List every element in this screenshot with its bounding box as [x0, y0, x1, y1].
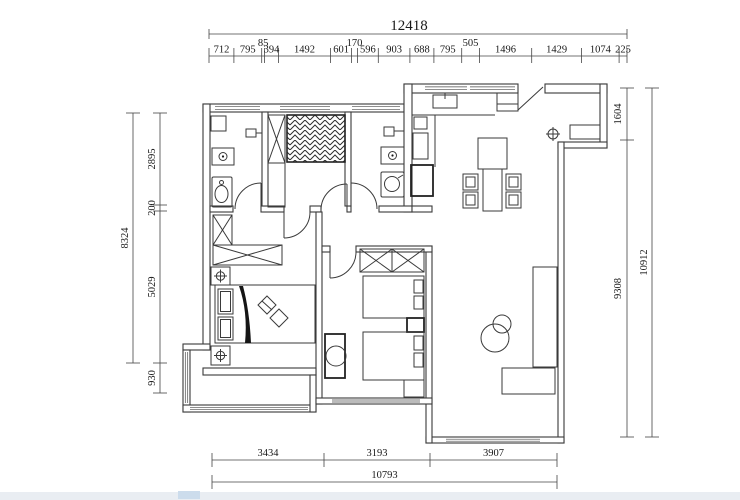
fridge-icon — [411, 165, 433, 196]
floor-plan: 1241871279585394149260117059690368879550… — [0, 0, 740, 500]
wall-heater-icon — [384, 127, 394, 136]
washing-machine-door — [326, 346, 346, 366]
counter-appliance — [414, 117, 427, 129]
wall-balcony-right — [310, 375, 316, 412]
dim-label: 1496 — [495, 45, 516, 56]
wall-bedroom2-north-a — [322, 246, 330, 252]
wall-left — [203, 104, 210, 350]
bed-runner — [239, 286, 251, 343]
wall-hall-north-e — [379, 206, 412, 212]
bathroom1 — [211, 116, 262, 207]
wall-bedroom2-south — [316, 398, 432, 404]
dim-label: 8324 — [120, 227, 131, 249]
stool — [404, 380, 424, 397]
twin-bed — [363, 276, 424, 318]
pillow — [414, 296, 423, 309]
pillow-inner — [221, 292, 231, 312]
dim-label: 12418 — [390, 18, 428, 34]
dining — [463, 138, 521, 211]
wall-entry-right — [600, 84, 607, 148]
wall-master-east — [316, 212, 322, 404]
master-bedroom — [211, 215, 315, 365]
chair — [463, 192, 478, 208]
chair — [463, 174, 478, 190]
study-door-arc — [321, 184, 347, 210]
screenshot-edge-artifact — [178, 491, 200, 499]
entry — [546, 125, 600, 141]
dim-label: 3193 — [367, 448, 388, 459]
chair-seat — [466, 177, 475, 187]
entry-door-leaf — [518, 87, 543, 110]
throw-pillow — [270, 309, 288, 327]
wall-bath1-east — [262, 112, 268, 206]
nightstand — [407, 318, 424, 332]
dining-table-leaf — [483, 169, 502, 211]
sink-drain-dot — [222, 155, 224, 157]
bedroom2-door-arc — [330, 252, 356, 278]
side-table-icon — [481, 324, 509, 352]
living-room — [481, 267, 557, 394]
tv-cabinet-tall — [533, 267, 557, 367]
pillow — [414, 280, 423, 293]
dining-table — [478, 138, 507, 169]
floor-plan-page: 1241871279585394149260117059690368879550… — [0, 0, 740, 500]
dim-label: 795 — [440, 45, 456, 56]
toilet-flush — [398, 175, 403, 178]
chair — [506, 174, 521, 190]
dim-label: 596 — [360, 45, 376, 56]
sink-drain-dot — [391, 154, 393, 156]
dim-label: 930 — [147, 370, 158, 386]
twin-bed — [363, 332, 424, 380]
dim-label: 200 — [147, 200, 158, 216]
wall-top-kitchen-west — [404, 84, 518, 93]
master-door-arc — [284, 212, 310, 238]
study-room — [268, 115, 345, 207]
dim-label: 1074 — [590, 45, 612, 56]
walls — [183, 84, 607, 443]
dim-label: 505 — [463, 38, 479, 49]
windows — [185, 87, 540, 441]
stove-icon — [497, 93, 518, 111]
pillow — [414, 353, 423, 367]
toilet-flush — [220, 181, 224, 185]
wall-balcony-bottom — [183, 405, 316, 412]
dim-label: 2895 — [147, 149, 158, 170]
wall-hall-north-c — [310, 206, 321, 212]
wall-living-bottom — [426, 437, 564, 443]
wall-top-west — [203, 104, 404, 112]
dim-label: 712 — [214, 45, 230, 56]
wall-hall-north-d — [347, 206, 351, 212]
screenshot-edge-artifact — [0, 492, 740, 500]
wall-balcony-left — [183, 350, 190, 412]
dim-label: 795 — [240, 45, 256, 56]
chair-seat — [509, 177, 518, 187]
shower-drain-box — [211, 116, 226, 131]
counter-appliance — [413, 133, 428, 159]
dim-label: 10793 — [371, 470, 397, 481]
shoe-cabinet — [570, 125, 600, 139]
cabinet — [268, 163, 285, 207]
tv-bench — [502, 368, 555, 394]
dim-label: 9308 — [613, 278, 624, 299]
dim-label: 1604 — [613, 103, 624, 125]
dim-label: 3907 — [483, 448, 504, 459]
dim-label: 5029 — [147, 277, 158, 298]
wall-heater-icon — [246, 129, 256, 137]
wall-master-south — [203, 368, 316, 375]
dim-label: 1429 — [546, 45, 567, 56]
dim-label: 1492 — [294, 45, 315, 56]
tatami-bed-hatch — [287, 115, 345, 162]
washing-machine-icon — [325, 334, 345, 378]
wall-living-right — [558, 142, 564, 443]
toilet-bowl — [385, 177, 400, 192]
chair-seat — [466, 195, 475, 205]
bathroom2 — [381, 127, 404, 197]
throw-pillow-fold — [262, 301, 272, 310]
bath1-door-arc — [235, 183, 261, 209]
dim-label: 903 — [386, 45, 402, 56]
chair — [506, 192, 521, 208]
pillow-inner — [221, 320, 231, 338]
wall-top-kitchen-east — [545, 84, 607, 93]
dim-label: 10912 — [639, 249, 650, 275]
chair-seat — [509, 195, 518, 205]
wall-balcony-top — [183, 344, 210, 350]
pillow — [414, 336, 423, 350]
dim-label: 394 — [264, 45, 281, 56]
dim-label: 3434 — [258, 448, 280, 459]
toilet-bowl — [215, 186, 228, 203]
wall-entry-jog — [558, 142, 607, 148]
wall-bath2-west — [345, 112, 351, 206]
dim-label: 225 — [615, 45, 631, 56]
dim-label: 688 — [414, 45, 430, 56]
wall-hall-north-f — [412, 206, 432, 212]
wall-bedroom2-east — [426, 246, 432, 443]
bedroom2 — [325, 249, 424, 397]
bath2-door-arc — [351, 183, 377, 209]
